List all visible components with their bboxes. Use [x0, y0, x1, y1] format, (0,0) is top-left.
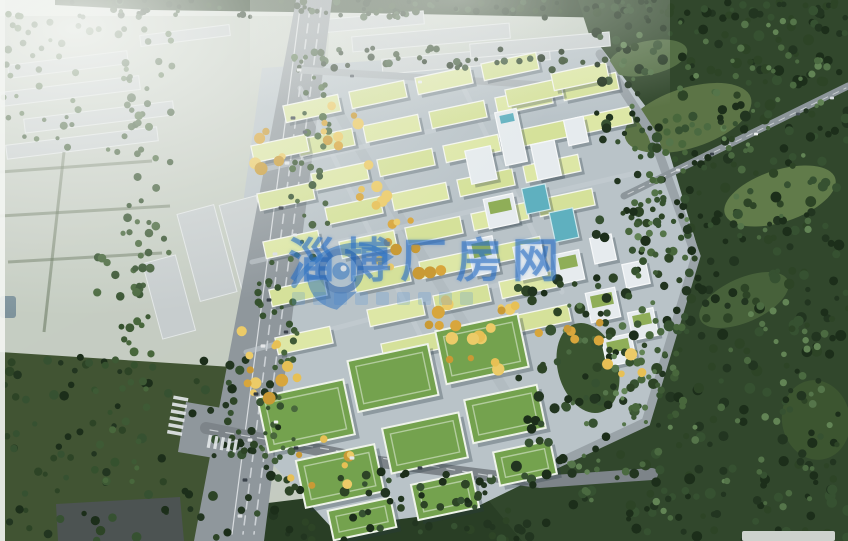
tree: [673, 114, 682, 123]
tree: [139, 377, 147, 385]
tree: [684, 217, 689, 222]
tree: [809, 400, 817, 408]
tree: [633, 358, 641, 366]
tree: [764, 506, 771, 513]
tree: [693, 73, 699, 79]
tree: [584, 421, 589, 426]
tree: [43, 472, 48, 477]
tree: [514, 524, 523, 533]
tree: [164, 389, 173, 398]
tree: [13, 370, 22, 379]
tree: [821, 308, 829, 316]
tree: [144, 490, 153, 499]
tree: [756, 302, 764, 310]
tree: [770, 272, 781, 283]
tree: [439, 478, 447, 486]
tree: [418, 529, 423, 534]
tree: [714, 40, 723, 49]
tree: [681, 124, 689, 132]
tree: [691, 436, 699, 444]
tree: [207, 407, 214, 414]
tree: [655, 465, 664, 474]
tree: [689, 122, 695, 128]
tree: [723, 313, 733, 323]
autumn-tree: [602, 359, 613, 370]
left-border-strip: [0, 0, 5, 541]
tree: [638, 154, 643, 159]
tree: [807, 496, 812, 501]
tree: [703, 38, 709, 44]
tree: [835, 330, 846, 341]
tree: [681, 487, 689, 495]
tree: [785, 52, 792, 59]
tree: [741, 284, 750, 293]
autumn-tree: [293, 373, 302, 382]
tree: [259, 445, 263, 449]
tree: [398, 496, 404, 502]
tree: [832, 183, 841, 192]
tree: [642, 405, 648, 411]
tree: [782, 227, 791, 236]
tree: [679, 202, 687, 210]
tree: [250, 441, 258, 449]
tree: [65, 433, 72, 440]
autumn-tree: [342, 479, 352, 489]
tree: [102, 362, 109, 369]
tree: [769, 169, 778, 178]
tree: [658, 386, 665, 393]
tree: [822, 223, 828, 229]
tree: [733, 121, 738, 126]
tree: [274, 474, 282, 482]
car: [254, 392, 259, 395]
tree: [817, 433, 823, 439]
tree: [56, 443, 62, 449]
tree: [644, 420, 648, 424]
tree: [529, 481, 536, 488]
tree: [653, 218, 662, 227]
tree: [733, 209, 743, 219]
tree: [771, 69, 776, 74]
tree: [10, 445, 17, 452]
tree: [731, 12, 739, 20]
tree: [714, 210, 722, 218]
tree: [489, 524, 495, 530]
tree: [748, 311, 754, 317]
tree: [436, 503, 444, 511]
tree: [682, 286, 692, 296]
tree: [542, 518, 551, 527]
tree: [681, 529, 687, 535]
tree: [804, 108, 809, 113]
tree: [26, 525, 32, 531]
tree: [387, 498, 394, 505]
tree: [650, 207, 656, 213]
tree: [717, 329, 728, 340]
tree: [790, 163, 796, 169]
tree: [119, 385, 126, 392]
tree: [245, 494, 252, 501]
tree: [704, 123, 712, 131]
tree: [226, 380, 232, 386]
tree: [122, 417, 130, 425]
tree: [785, 490, 792, 497]
tree: [822, 234, 830, 242]
tree: [808, 430, 815, 437]
tree: [264, 465, 270, 471]
tree: [302, 518, 309, 525]
tree: [272, 458, 279, 465]
tree: [773, 418, 780, 425]
tree: [825, 349, 834, 358]
autumn-tree: [308, 482, 315, 489]
tree: [567, 469, 576, 478]
tree: [263, 431, 267, 435]
tree: [723, 364, 732, 373]
tree: [807, 179, 813, 185]
tree: [625, 228, 632, 235]
tree: [136, 438, 142, 444]
tree: [710, 416, 717, 423]
tree: [631, 524, 641, 534]
tree: [719, 431, 729, 441]
tree: [729, 136, 735, 142]
tree: [96, 440, 104, 448]
tree: [212, 453, 217, 458]
autumn-tree: [296, 452, 302, 458]
tree: [698, 213, 704, 219]
tree: [674, 199, 680, 205]
autumn-tree: [275, 374, 288, 387]
tree: [657, 176, 665, 184]
tree: [819, 77, 828, 86]
tree: [810, 466, 815, 471]
tree: [729, 256, 739, 266]
tree: [472, 505, 477, 510]
tree: [149, 364, 156, 371]
tree: [525, 532, 534, 541]
tree: [679, 403, 686, 410]
tree: [767, 222, 772, 227]
tree: [416, 483, 424, 491]
autumn-tree: [625, 348, 637, 360]
tree: [763, 79, 768, 84]
tree: [272, 365, 278, 371]
tree: [591, 379, 600, 388]
tree: [301, 533, 307, 539]
tree: [778, 434, 788, 444]
tree: [714, 69, 722, 77]
tree: [766, 65, 771, 70]
tree: [739, 1, 747, 9]
car: [248, 438, 253, 441]
tree: [654, 448, 662, 456]
tree: [770, 307, 777, 314]
tree: [795, 59, 799, 63]
tree: [790, 19, 797, 26]
tree: [737, 233, 742, 238]
tree: [779, 503, 786, 510]
tree: [694, 383, 704, 393]
autumn-tree: [263, 392, 276, 405]
tree: [223, 528, 231, 536]
tree: [730, 8, 734, 12]
tree: [582, 454, 586, 458]
tree: [685, 64, 691, 70]
car: [754, 133, 758, 136]
tree: [582, 487, 589, 494]
tree: [476, 477, 484, 485]
tree: [713, 89, 720, 96]
tree: [810, 471, 819, 480]
tree: [652, 143, 662, 153]
tree: [646, 230, 653, 237]
tree: [281, 446, 286, 451]
tree: [201, 385, 210, 394]
tree: [752, 518, 759, 525]
aerial-render-image: 淄博厂房网: [0, 0, 848, 541]
tree: [651, 477, 660, 486]
tree: [644, 506, 650, 512]
tree: [653, 318, 659, 324]
tree: [684, 473, 695, 484]
tree: [108, 513, 117, 522]
tree: [740, 111, 751, 122]
tree: [678, 213, 684, 219]
tree: [818, 386, 825, 393]
tree: [657, 328, 664, 335]
tree: [721, 31, 728, 38]
tree: [817, 157, 826, 166]
tree: [660, 200, 666, 206]
tree: [801, 153, 806, 158]
car: [274, 420, 278, 423]
tree: [59, 391, 69, 401]
tree: [827, 484, 837, 494]
tree: [615, 475, 620, 480]
tree: [32, 421, 37, 426]
tree: [131, 362, 138, 369]
tree: [766, 23, 771, 28]
tree: [534, 391, 545, 402]
dark-building-bottom-left: [56, 497, 184, 541]
tree: [667, 414, 673, 420]
tree: [91, 451, 97, 457]
tree: [691, 150, 698, 157]
tree: [119, 426, 126, 433]
tree: [766, 126, 770, 130]
tree: [634, 221, 641, 228]
tree: [604, 400, 613, 409]
tree: [789, 153, 797, 161]
tree: [762, 388, 771, 397]
tree: [684, 9, 691, 16]
fog-overlay-top-center: [250, 0, 670, 140]
tree: [755, 327, 764, 336]
tree: [798, 76, 803, 81]
tree: [761, 413, 769, 421]
tree: [781, 2, 787, 8]
tree: [705, 488, 716, 499]
tree: [747, 146, 754, 153]
tree: [365, 509, 371, 515]
car: [243, 478, 248, 481]
tree: [814, 57, 821, 64]
tree: [779, 214, 783, 218]
tree: [109, 426, 116, 433]
tree: [668, 425, 673, 430]
tree: [482, 490, 487, 495]
tree: [832, 250, 840, 258]
tree: [743, 148, 748, 153]
tree: [49, 390, 59, 400]
tree: [718, 105, 727, 114]
tree: [831, 127, 839, 135]
tree: [753, 496, 762, 505]
tree: [686, 186, 694, 194]
tree: [687, 246, 696, 255]
tree: [182, 488, 189, 495]
car: [238, 514, 243, 517]
tree: [702, 314, 710, 322]
tree: [636, 273, 642, 279]
autumn-tree: [244, 379, 252, 387]
tree: [780, 144, 789, 153]
tree: [338, 475, 344, 481]
car: [350, 456, 355, 459]
tree: [698, 332, 706, 340]
tree: [672, 369, 679, 376]
tree: [397, 504, 405, 512]
tree: [763, 1, 770, 8]
tree: [34, 467, 42, 475]
tree: [660, 282, 668, 290]
tree: [682, 255, 688, 261]
tree: [134, 465, 139, 470]
tree: [747, 188, 753, 194]
tree: [254, 510, 260, 516]
tree: [770, 157, 778, 165]
autumn-tree: [282, 361, 293, 372]
tree: [511, 461, 522, 472]
tree: [768, 14, 775, 21]
car: [830, 97, 834, 100]
tree: [58, 360, 64, 366]
tree: [275, 424, 281, 430]
tree: [763, 228, 768, 233]
tree: [266, 406, 271, 411]
tree: [743, 348, 750, 355]
tree: [829, 276, 838, 285]
tree: [744, 383, 755, 394]
tree: [93, 388, 99, 394]
tree: [266, 380, 274, 388]
tree: [208, 491, 218, 501]
scene-svg: [0, 0, 848, 541]
tree: [629, 330, 639, 340]
tree: [129, 479, 134, 484]
tree: [803, 34, 814, 45]
tree: [804, 323, 809, 328]
tree: [728, 152, 735, 159]
tree: [230, 397, 238, 405]
corner-card-sliver: [742, 531, 835, 541]
tree: [680, 194, 689, 203]
tree: [525, 439, 534, 448]
tree: [818, 99, 825, 106]
tree: [521, 472, 528, 479]
haze-layer: [0, 0, 670, 360]
tree: [647, 151, 654, 158]
tree: [594, 466, 600, 472]
tree: [102, 468, 110, 476]
tree: [620, 396, 624, 400]
tree: [12, 393, 20, 401]
car: [418, 466, 423, 469]
tree: [814, 104, 818, 108]
tree: [365, 490, 372, 497]
tree: [710, 162, 716, 168]
tree: [235, 366, 244, 375]
tree: [631, 199, 638, 206]
tree: [806, 132, 815, 141]
tree: [91, 466, 99, 474]
tree: [626, 516, 631, 521]
tree: [656, 423, 661, 428]
tree: [621, 388, 627, 394]
tree: [702, 300, 709, 307]
tree: [763, 327, 768, 332]
tree: [753, 56, 762, 65]
tree: [158, 454, 166, 462]
tree: [613, 390, 619, 396]
tree: [805, 287, 810, 292]
tree: [730, 37, 737, 44]
tree: [726, 145, 732, 151]
tree: [187, 506, 193, 512]
tree: [830, 459, 836, 465]
tree: [814, 343, 821, 350]
tree: [713, 271, 719, 277]
tree: [765, 99, 776, 110]
tree: [91, 516, 100, 525]
tree: [110, 458, 119, 467]
tree: [194, 378, 200, 384]
tree: [108, 410, 113, 415]
tree: [798, 449, 806, 457]
tree: [707, 66, 716, 75]
tree: [538, 421, 545, 428]
tree: [688, 112, 697, 121]
tree: [685, 268, 694, 277]
tree: [592, 446, 599, 453]
tree: [550, 403, 560, 413]
tree: [678, 140, 686, 148]
autumn-tree: [320, 435, 328, 443]
tree: [286, 526, 294, 534]
tree: [733, 193, 739, 199]
tree: [694, 128, 702, 136]
tree: [654, 197, 660, 203]
tree: [505, 507, 511, 513]
tree: [620, 211, 625, 216]
tree: [680, 168, 685, 173]
tree: [420, 501, 428, 509]
tree: [646, 374, 651, 379]
tree: [673, 307, 681, 315]
tree: [784, 363, 790, 369]
tree: [291, 405, 298, 412]
